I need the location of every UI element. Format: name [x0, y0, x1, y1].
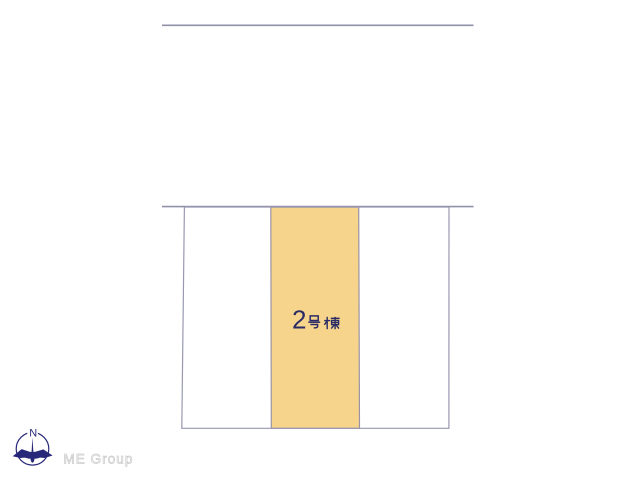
svg-text:N: N [29, 428, 37, 440]
svg-text:2: 2 [292, 305, 306, 335]
svg-text:ME Group: ME Group [64, 452, 134, 467]
